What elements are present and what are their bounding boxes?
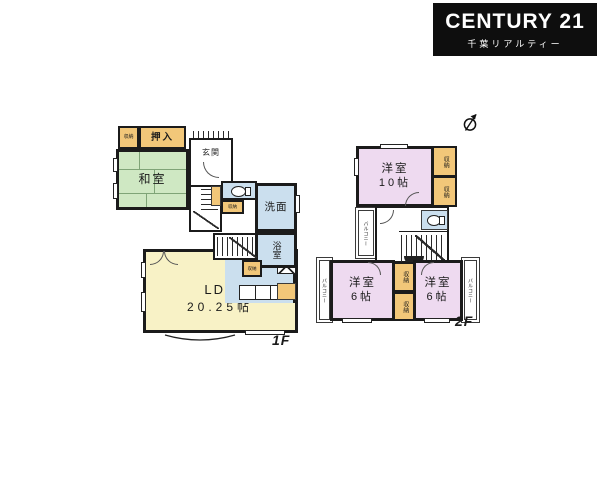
storage-label: 収納 bbox=[441, 156, 449, 168]
room-yoshitsu-10: 洋室 10帖 bbox=[356, 146, 434, 207]
window-washitsu-2 bbox=[113, 183, 118, 199]
stairs-lower-1f bbox=[213, 233, 257, 260]
floor1-label: 1F bbox=[272, 332, 290, 348]
room-washitsu: 和室 bbox=[116, 149, 189, 210]
balcony-label: バルコニー bbox=[467, 278, 474, 303]
toilet-icon-1f bbox=[231, 186, 246, 197]
floor2-label: 2F bbox=[455, 313, 473, 329]
closet-storage-2f-d: 収納 bbox=[393, 292, 415, 321]
room-yoshitsu-6-right: 洋室 6帖 bbox=[413, 260, 463, 321]
room6-left-size-label: 6帖 bbox=[351, 291, 374, 305]
window-ldk-left-1 bbox=[141, 262, 146, 278]
century21-logo: CENTURY 21 千葉リアルティー bbox=[433, 3, 597, 56]
closet-storage-2f-b: 収納 bbox=[432, 176, 457, 207]
room6-right-name-label: 洋室 bbox=[425, 276, 452, 290]
room6-left-name-label: 洋室 bbox=[349, 276, 376, 290]
floorplan-page: CENTURY 21 千葉リアルティー LDK 20.25帖 収納 bbox=[0, 0, 600, 499]
storage-label: 収納 bbox=[441, 186, 449, 198]
closet-oshiire: 押入 bbox=[139, 126, 186, 149]
window-room10-left bbox=[354, 158, 359, 176]
washitsu-label: 和室 bbox=[138, 172, 166, 187]
balcony-label: バルコニー bbox=[363, 221, 370, 246]
closet-storage-1f-hall: 収納 bbox=[221, 200, 244, 214]
toilet-room-1f bbox=[221, 181, 257, 200]
closet-storage-1f-kitchen: 収納 bbox=[242, 260, 262, 277]
room10-size-label: 10帖 bbox=[379, 177, 411, 191]
window-washitsu-1 bbox=[113, 158, 118, 172]
storage-label: 収納 bbox=[248, 266, 257, 272]
storage-label: 収納 bbox=[400, 301, 408, 313]
room-yoshitsu-6-left: 洋室 6帖 bbox=[330, 260, 395, 321]
window-room6-right bbox=[424, 318, 450, 323]
toilet-tank-2f bbox=[439, 216, 445, 225]
hall2f-door-arc bbox=[380, 210, 394, 224]
window-room10-top bbox=[380, 144, 408, 149]
window-ldk-left-2 bbox=[141, 292, 146, 312]
window-senmen bbox=[295, 195, 300, 213]
toilet-tank-1f bbox=[245, 187, 251, 196]
closet-storage-2f-a: 収納 bbox=[432, 146, 457, 177]
logo-brand-text: CENTURY 21 bbox=[445, 10, 585, 34]
genkan-label: 玄関 bbox=[202, 148, 220, 158]
balcony-middle: バルコニー bbox=[355, 207, 377, 259]
kitchen-cabinet bbox=[277, 283, 296, 300]
stair-side-cabinet bbox=[211, 186, 221, 206]
north-arrow-icon bbox=[461, 111, 481, 133]
yokushitsu-label: 浴室 bbox=[270, 241, 281, 259]
storage-label: 収納 bbox=[400, 271, 408, 283]
room10-name-label: 洋室 bbox=[382, 162, 409, 176]
hall-2f bbox=[375, 206, 449, 263]
balcony-label: バルコニー bbox=[321, 278, 328, 303]
storage-label: 収納 bbox=[228, 204, 237, 210]
oshiire-label: 押入 bbox=[151, 132, 174, 144]
room-senmen: 洗面 bbox=[255, 183, 297, 232]
storage-label: 収納 bbox=[123, 134, 133, 140]
toilet-room-2f bbox=[421, 210, 448, 230]
room6-right-size-label: 6帖 bbox=[426, 291, 449, 305]
senmen-label: 洗面 bbox=[265, 201, 288, 214]
bay-window-arc bbox=[163, 331, 237, 341]
closet-storage-1f-topleft: 収納 bbox=[118, 126, 139, 149]
logo-subtitle-text: 千葉リアルティー bbox=[467, 37, 562, 50]
window-room6-left bbox=[342, 318, 372, 323]
closet-storage-2f-c: 収納 bbox=[393, 262, 415, 292]
